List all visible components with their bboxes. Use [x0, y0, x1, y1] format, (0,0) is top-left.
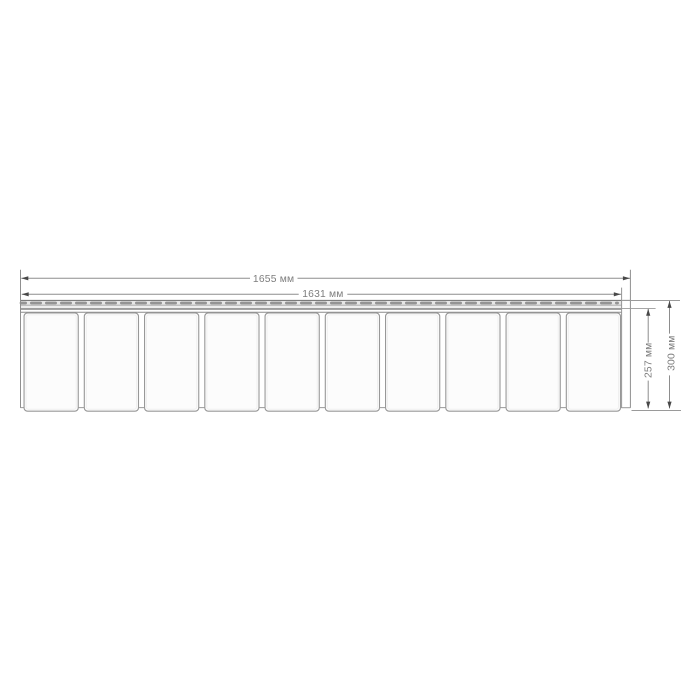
svg-text:257 мм: 257 мм: [644, 343, 655, 378]
svg-text:1655 мм: 1655 мм: [253, 274, 294, 285]
svg-text:1631 мм: 1631 мм: [302, 289, 343, 300]
svg-text:300 мм: 300 мм: [666, 335, 677, 370]
